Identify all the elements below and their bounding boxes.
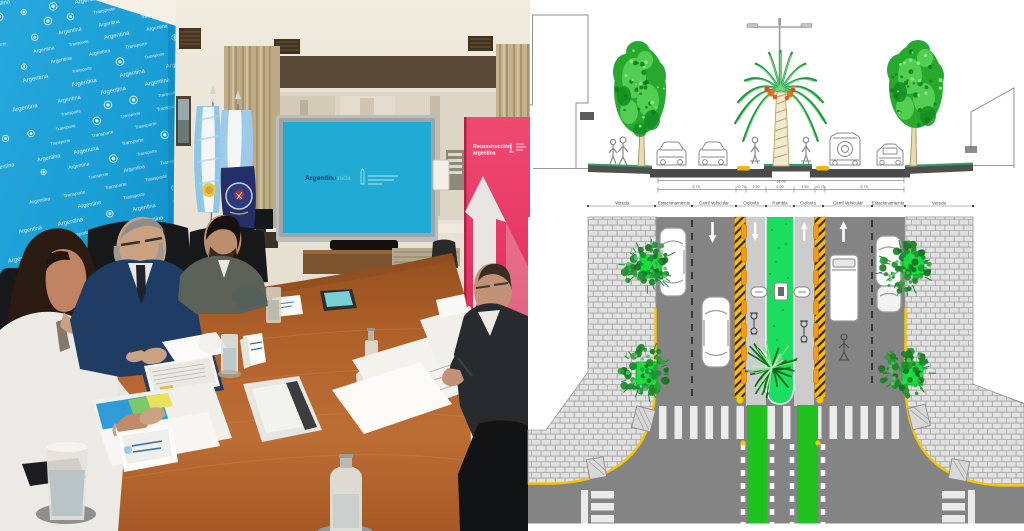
svg-text:Rambla: Rambla	[772, 201, 788, 206]
svg-text:1.50: 1.50	[752, 185, 759, 189]
svg-text:Estacionamiento: Estacionamiento	[872, 201, 905, 206]
svg-text:Estacionamiento: Estacionamiento	[658, 201, 691, 206]
svg-text:18.00: 18.00	[776, 179, 787, 184]
svg-text:Carril Vehicular: Carril Vehicular	[833, 201, 863, 206]
svg-text:+0.75: +0.75	[736, 185, 746, 189]
svg-text:1.50: 1.50	[801, 185, 808, 189]
svg-text:Carril Vehicular: Carril Vehicular	[699, 201, 729, 206]
svg-text:+0.75: +0.75	[815, 185, 825, 189]
svg-text:Reconstrucción: Reconstrucción	[473, 144, 511, 150]
svg-text:5.75: 5.75	[692, 185, 699, 189]
svg-text:5.75: 5.75	[860, 185, 867, 189]
svg-text:2.00: 2.00	[776, 185, 783, 189]
svg-text:Vereda: Vereda	[615, 201, 629, 206]
svg-text:Ciclovía: Ciclovía	[743, 201, 759, 206]
svg-text:argentina: argentina	[473, 151, 496, 157]
svg-text:Argentina: Argentina	[305, 175, 337, 182]
svg-text:Ciclovía: Ciclovía	[800, 201, 816, 206]
svg-text:unida: unida	[334, 175, 351, 182]
svg-text:Vereda: Vereda	[932, 201, 946, 206]
